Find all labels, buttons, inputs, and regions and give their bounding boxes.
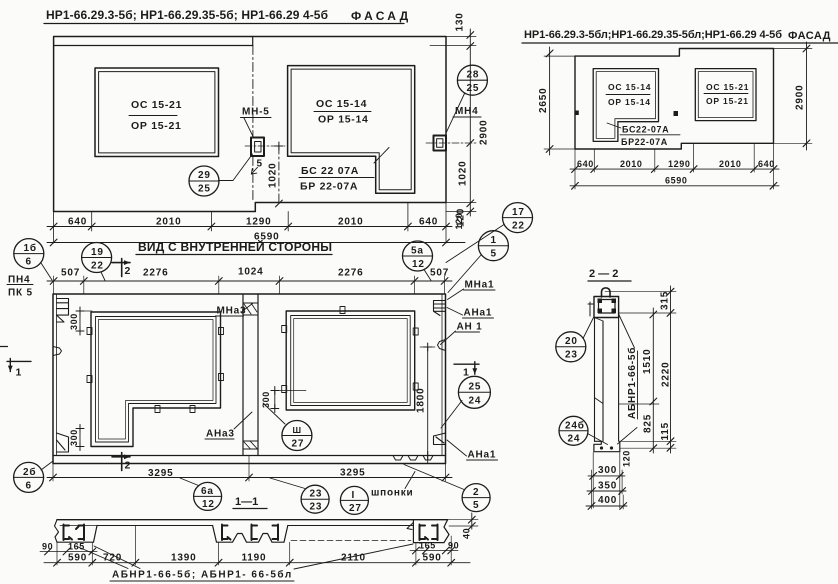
svg-text:2010: 2010 xyxy=(719,159,741,169)
svg-text:I: I xyxy=(352,490,356,501)
svg-text:120: 120 xyxy=(622,450,632,467)
svg-text:1024: 1024 xyxy=(238,267,263,278)
svg-text:АБНР1-66-5б: АБНР1-66-5б xyxy=(626,347,638,419)
svg-text:400: 400 xyxy=(598,495,617,506)
svg-text:ПН4: ПН4 xyxy=(8,275,30,286)
svg-text:1290: 1290 xyxy=(668,159,690,169)
svg-text:ОС 15-14: ОС 15-14 xyxy=(608,82,651,92)
svg-text:МН-5: МН-5 xyxy=(242,107,270,118)
svg-text:590: 590 xyxy=(423,553,442,564)
svg-text:БР 22-07А: БР 22-07А xyxy=(300,181,358,193)
svg-text:ОР 15-21: ОР 15-21 xyxy=(131,120,182,132)
svg-text:2 — 2: 2 — 2 xyxy=(589,268,618,280)
svg-text:1: 1 xyxy=(463,367,470,379)
svg-text:АНа1: АНа1 xyxy=(468,450,497,461)
svg-text:2б: 2б xyxy=(23,466,36,478)
svg-text:2220: 2220 xyxy=(661,362,672,387)
svg-text:БС 22 07А: БС 22 07А xyxy=(301,165,359,177)
svg-text:АНа3: АНа3 xyxy=(206,429,235,440)
svg-text:300: 300 xyxy=(598,465,617,476)
svg-text:19: 19 xyxy=(91,247,104,258)
svg-text:350: 350 xyxy=(598,481,617,492)
svg-text:ФАСАД: ФАСАД xyxy=(788,30,832,42)
svg-text:МН4: МН4 xyxy=(455,106,479,117)
svg-text:300: 300 xyxy=(69,429,79,446)
svg-text:1б: 1б xyxy=(24,242,37,254)
svg-text:5: 5 xyxy=(473,500,479,511)
svg-text:5а: 5а xyxy=(411,246,424,257)
svg-text:120: 120 xyxy=(454,213,464,230)
svg-text:ВИД С ВНУТРЕННЕЙ СТОРОНЫ: ВИД С ВНУТРЕННЕЙ СТОРОНЫ xyxy=(138,239,332,254)
svg-text:1: 1 xyxy=(491,235,497,246)
svg-text:2010: 2010 xyxy=(156,217,181,228)
svg-text:МНа1: МНа1 xyxy=(465,280,495,291)
svg-text:2: 2 xyxy=(125,460,132,472)
svg-text:507: 507 xyxy=(61,268,80,279)
svg-text:25: 25 xyxy=(467,83,480,94)
svg-text:ОР 15-14: ОР 15-14 xyxy=(318,114,369,126)
svg-text:1190: 1190 xyxy=(242,553,267,564)
svg-text:3295: 3295 xyxy=(148,468,173,479)
svg-text:НР1-66.29.3-5б; НР1-66.29.35-5: НР1-66.29.3-5б; НР1-66.29.35-5б; НР1-66.… xyxy=(46,8,328,22)
svg-text:640: 640 xyxy=(68,217,87,228)
svg-text:40: 40 xyxy=(462,528,472,539)
svg-text:ФАСАД: ФАСАД xyxy=(351,9,411,23)
svg-text:2010: 2010 xyxy=(620,159,642,169)
svg-text:315: 315 xyxy=(660,291,671,310)
svg-text:БС22-07А: БС22-07А xyxy=(622,125,669,135)
svg-text:2276: 2276 xyxy=(143,268,168,279)
svg-text:12: 12 xyxy=(202,499,215,510)
svg-text:640: 640 xyxy=(758,159,775,169)
svg-text:БР22-07А: БР22-07А xyxy=(621,137,668,147)
svg-text:300: 300 xyxy=(69,313,79,330)
svg-text:90: 90 xyxy=(448,541,459,551)
svg-text:Ш: Ш xyxy=(293,425,302,435)
svg-text:1—1: 1—1 xyxy=(235,496,258,508)
svg-text:АБНР1-66-5б; АБНР1- 66-5бл: АБНР1-66-5б; АБНР1- 66-5бл xyxy=(112,569,292,581)
svg-text:ОР 15-21: ОР 15-21 xyxy=(706,96,749,106)
svg-text:ПК 5: ПК 5 xyxy=(8,288,33,299)
svg-text:1510: 1510 xyxy=(642,349,653,374)
svg-text:115: 115 xyxy=(660,422,671,441)
svg-text:640: 640 xyxy=(419,217,438,228)
svg-text:590: 590 xyxy=(68,553,87,564)
svg-text:507: 507 xyxy=(430,268,449,279)
svg-text:2900: 2900 xyxy=(795,85,806,110)
svg-text:шпонки: шпонки xyxy=(371,488,413,499)
svg-text:90: 90 xyxy=(42,542,53,552)
svg-text:12: 12 xyxy=(412,259,425,270)
svg-text:ОР 15-14: ОР 15-14 xyxy=(608,97,651,107)
svg-text:5: 5 xyxy=(491,249,497,260)
svg-text:1: 1 xyxy=(16,367,23,379)
svg-text:1800: 1800 xyxy=(416,388,427,413)
svg-text:3295: 3295 xyxy=(340,468,365,479)
svg-text:20: 20 xyxy=(565,336,578,347)
svg-text:2: 2 xyxy=(125,265,132,277)
svg-text:1020: 1020 xyxy=(268,163,279,188)
svg-text:24: 24 xyxy=(568,434,581,445)
svg-text:1290: 1290 xyxy=(246,217,271,228)
svg-text:МНа3: МНа3 xyxy=(217,306,247,317)
svg-text:2010: 2010 xyxy=(338,217,363,228)
svg-text:ОС 15-21: ОС 15-21 xyxy=(706,82,749,92)
svg-text:23: 23 xyxy=(310,489,323,500)
svg-text:25: 25 xyxy=(198,184,211,195)
svg-text:130: 130 xyxy=(455,12,466,31)
svg-text:29: 29 xyxy=(198,170,211,181)
svg-text:27: 27 xyxy=(292,439,305,450)
svg-text:25: 25 xyxy=(469,382,482,393)
svg-text:24: 24 xyxy=(469,396,482,407)
svg-text:6: 6 xyxy=(26,257,32,268)
svg-text:22: 22 xyxy=(512,221,525,232)
svg-text:6а: 6а xyxy=(201,486,214,497)
svg-text:1020: 1020 xyxy=(458,161,469,186)
svg-text:17: 17 xyxy=(512,207,525,218)
svg-text:27: 27 xyxy=(349,503,362,514)
svg-text:АН 1: АН 1 xyxy=(457,322,483,333)
svg-text:23: 23 xyxy=(565,350,578,361)
svg-text:1390: 1390 xyxy=(171,553,196,564)
svg-text:2276: 2276 xyxy=(338,268,363,279)
svg-text:825: 825 xyxy=(643,414,654,433)
svg-text:ОС 15-21: ОС 15-21 xyxy=(131,99,182,111)
svg-text:НР1-66.29.3-5бл;НР1-66.29.35-5: НР1-66.29.3-5бл;НР1-66.29.35-5бл;НР1-66.… xyxy=(524,29,782,41)
svg-text:АНа1: АНа1 xyxy=(464,308,493,319)
svg-text:2650: 2650 xyxy=(538,88,549,113)
svg-text:28: 28 xyxy=(467,70,480,81)
svg-text:2: 2 xyxy=(473,487,479,498)
svg-text:2900: 2900 xyxy=(479,120,490,145)
svg-text:24б: 24б xyxy=(565,420,585,432)
svg-text:6590: 6590 xyxy=(665,176,687,186)
svg-text:23: 23 xyxy=(310,502,323,513)
svg-text:22: 22 xyxy=(91,261,104,272)
svg-text:6: 6 xyxy=(26,481,32,492)
svg-text:640: 640 xyxy=(577,159,594,169)
svg-text:ОС 15-14: ОС 15-14 xyxy=(316,98,367,110)
